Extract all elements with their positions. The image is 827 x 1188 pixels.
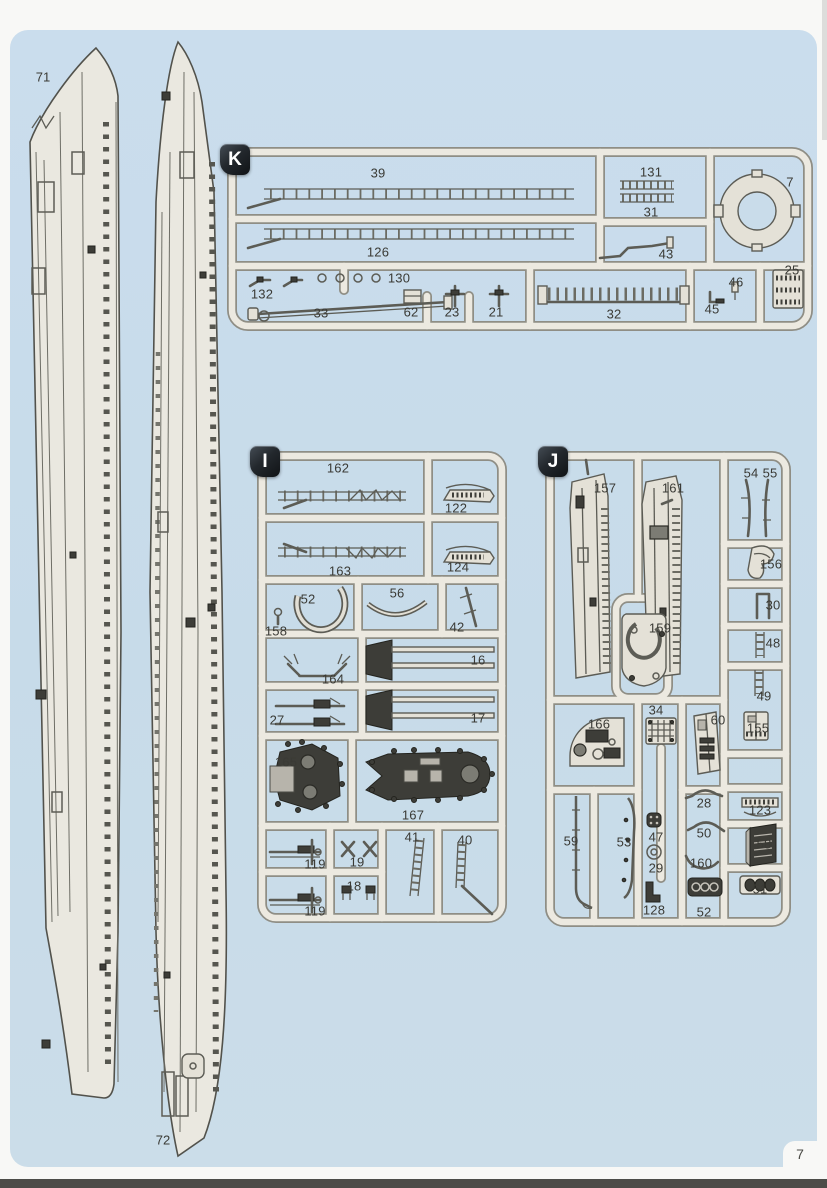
blue-page-background: 71 72 K (10, 30, 817, 1167)
part-label-16: 16 (471, 653, 486, 668)
part-39-railing (248, 189, 574, 208)
part-label-45: 45 (705, 302, 720, 317)
part-label-159: 159 (649, 621, 671, 636)
part-167-deck (366, 748, 495, 803)
part-label-47: 47 (649, 830, 664, 845)
scan-bottom-edge (0, 1179, 827, 1188)
part-label-160: 160 (690, 856, 712, 871)
part-label-126: 126 (367, 245, 389, 260)
part-158-pin (275, 609, 282, 625)
scan-edge-sliver (822, 0, 827, 140)
part-label-131: 131 (640, 165, 662, 180)
sprue-k-badge: K (220, 144, 250, 175)
part-label-53: 53 (617, 835, 632, 850)
part-label-41: 41 (405, 830, 420, 845)
part-label-156: 156 (760, 557, 782, 572)
hull-71-label: 71 (36, 70, 50, 85)
part-label-40: 40 (458, 833, 473, 848)
part-label-52j: 52 (697, 905, 712, 920)
hull-72-label: 72 (156, 1133, 170, 1148)
part-label-157: 157 (594, 481, 616, 496)
part-34-waffle (646, 718, 676, 744)
part-label-33: 33 (314, 306, 329, 321)
part-label-28: 28 (697, 796, 712, 811)
hull-parts-figure: 71 72 (12, 32, 248, 1164)
part-label-18: 18 (347, 879, 362, 894)
part-label-32: 32 (607, 307, 622, 322)
hull-72-shape (150, 42, 226, 1156)
part-label-166: 166 (588, 717, 610, 732)
part-label-162: 162 (327, 461, 349, 476)
part-label-62: 62 (404, 305, 419, 320)
part-label-19: 19 (350, 855, 365, 870)
part-label-167: 167 (402, 808, 424, 823)
part-label-60: 60 (711, 713, 726, 728)
part-label-30: 30 (766, 598, 781, 613)
part-label-165: 165 (275, 755, 297, 770)
part-label-23: 23 (445, 305, 460, 320)
part-label-158: 158 (265, 624, 287, 639)
part-label-59: 59 (564, 834, 579, 849)
part-label-21: 21 (489, 305, 504, 320)
part-label-51: 51 (753, 882, 768, 897)
manual-page: { "page": { "number": "7" }, "hulls": { … (0, 0, 827, 1188)
part-label-132: 132 (251, 287, 273, 302)
sprue-j: J (542, 448, 794, 930)
part-31-ladder (620, 194, 674, 202)
part-label-122: 122 (445, 501, 467, 516)
sprue-i-badge: I (250, 446, 280, 477)
part-21 (490, 286, 508, 306)
part-label-124: 124 (447, 560, 469, 575)
part-label-25: 25 (785, 263, 800, 278)
part-label-48: 48 (766, 636, 781, 651)
part-163-railing (278, 544, 406, 558)
part-label-119b: 119 (304, 904, 325, 919)
part-label-52: 52 (301, 592, 316, 607)
sprue-j-badge: J (538, 446, 568, 477)
part-27-guns (276, 698, 344, 726)
part-label-119a: 119 (304, 857, 325, 872)
part-label-123: 123 (749, 803, 771, 818)
part-label-58: 58 (757, 837, 772, 852)
part-label-31: 31 (644, 205, 659, 220)
part-128-angle (646, 882, 660, 902)
part-122-vent (444, 484, 494, 502)
part-47-nut (647, 813, 661, 827)
part-label-49: 49 (757, 689, 772, 704)
part-label-54: 54 (744, 466, 759, 481)
part-label-155: 155 (747, 721, 769, 736)
part-label-56: 56 (390, 586, 405, 601)
hull-71-shape (30, 48, 121, 1098)
part-label-128: 128 (643, 903, 665, 918)
part-label-43: 43 (659, 247, 674, 262)
part-162-railing (278, 490, 406, 508)
part-label-27: 27 (270, 713, 285, 728)
part-132-fittings (250, 277, 302, 286)
part-label-163: 163 (329, 564, 351, 579)
hull-drawing (12, 32, 248, 1164)
sprue-k: K (224, 144, 816, 334)
sprue-i-drawing (254, 448, 510, 926)
part-41-ladder (410, 838, 424, 896)
page-number: 7 (796, 1146, 804, 1162)
part-label-130: 130 (388, 271, 410, 286)
part-48-ladder (756, 632, 764, 658)
part-32-grating (538, 286, 689, 304)
part-label-164: 164 (322, 672, 344, 687)
part-54-rod (741, 480, 750, 536)
part-52j-cluster (688, 878, 722, 896)
part-165-deck (270, 740, 345, 813)
part-label-55: 55 (763, 466, 778, 481)
part-131-ladder (620, 181, 674, 189)
part-label-34: 34 (649, 703, 664, 718)
part-label-50: 50 (697, 826, 712, 841)
part-126-railing (248, 229, 574, 248)
part-label-7: 7 (786, 175, 793, 190)
part-label-17: 17 (471, 711, 486, 726)
part-label-161: 161 (662, 481, 684, 496)
part-label-39: 39 (371, 166, 386, 181)
part-label-29: 29 (649, 861, 664, 876)
part-62-box (404, 290, 421, 303)
part-40-ladder (456, 842, 492, 914)
sprue-i: I (254, 448, 510, 926)
part-56-arc (368, 602, 426, 615)
part-55-rod (762, 480, 771, 536)
page-number-notch: 7 (783, 1141, 817, 1167)
part-label-46: 46 (729, 275, 744, 290)
part-label-42: 42 (450, 620, 465, 635)
